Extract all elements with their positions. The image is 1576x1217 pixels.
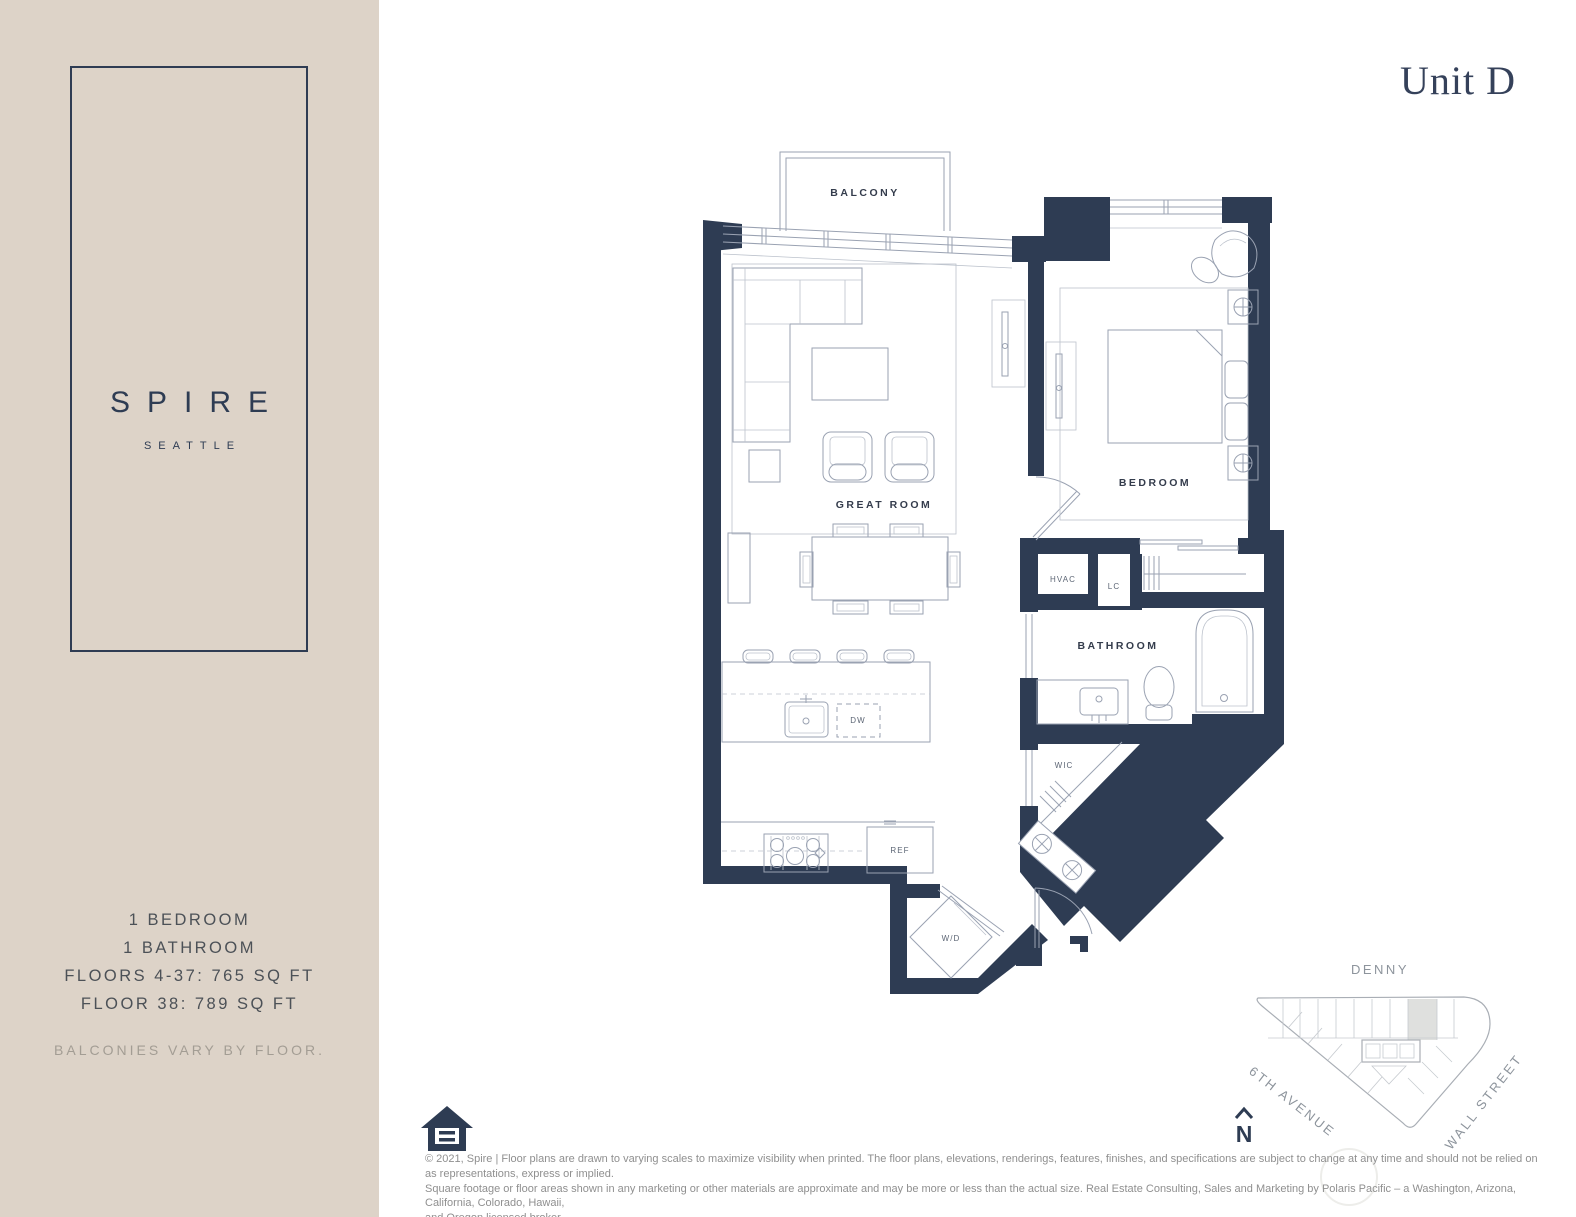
disclaimer: © 2021, Spire | Floor plans are drawn to… xyxy=(425,1152,1550,1217)
label-great-room: GREAT ROOM xyxy=(836,499,933,511)
highlighted-unit xyxy=(1408,999,1437,1040)
console xyxy=(728,533,750,603)
disclaimer-line: and Oregon licensed broker. xyxy=(425,1211,1550,1217)
elevator-core xyxy=(1362,1040,1420,1062)
label-wic: WIC xyxy=(1055,761,1074,770)
label-dw: DW xyxy=(850,716,866,725)
great-room-furniture xyxy=(728,264,1025,614)
closet-slider xyxy=(1140,540,1202,544)
linen-closet xyxy=(1144,556,1246,590)
tv-wall-mount xyxy=(992,300,1025,387)
bathtub xyxy=(1196,610,1253,712)
pillow xyxy=(1225,361,1248,398)
label-bathroom: BATHROOM xyxy=(1077,640,1158,652)
label-ref: REF xyxy=(890,846,909,855)
rug xyxy=(732,264,956,534)
windows xyxy=(723,152,1222,268)
coffee-table xyxy=(812,348,888,400)
pillow xyxy=(1225,403,1248,440)
label-wd: W/D xyxy=(942,934,961,943)
bedroom-chair xyxy=(1186,231,1256,288)
side-table xyxy=(749,450,780,482)
kitchen-sink xyxy=(785,695,828,737)
floorplan-drawing: BALCONY GREAT ROOM BEDROOM BATHROOM HVAC… xyxy=(0,0,1576,1217)
armchair xyxy=(823,432,872,482)
label-lc: LC xyxy=(1108,582,1120,591)
label-hvac: HVAC xyxy=(1050,575,1076,584)
bar-stools xyxy=(743,650,914,663)
sofa xyxy=(733,268,862,442)
dining-table xyxy=(812,537,948,600)
street-wall-street: WALL STREET xyxy=(1442,1051,1526,1152)
armchair xyxy=(885,432,934,482)
unit-walls xyxy=(703,197,1284,994)
floorplan-page: { "colors": { "wall": "#2e3c53", "sideba… xyxy=(0,0,1576,1217)
toilet xyxy=(1144,667,1174,721)
bed xyxy=(1108,330,1222,443)
street-6th-avenue: 6TH AVENUE xyxy=(1246,1063,1338,1139)
site-key-map: DENNY 6TH AVENUE WALL STREET xyxy=(1246,962,1525,1152)
bathroom-fixtures xyxy=(1037,610,1253,724)
north-caret-icon xyxy=(1236,1109,1252,1118)
label-bedroom: BEDROOM xyxy=(1119,477,1191,489)
page-title: Unit D xyxy=(1400,57,1516,104)
bedroom-furniture xyxy=(1046,231,1258,590)
label-balcony: BALCONY xyxy=(830,187,899,199)
disclaimer-line: © 2021, Spire | Floor plans are drawn to… xyxy=(425,1152,1550,1182)
kitchen xyxy=(721,650,935,873)
vanity-sink xyxy=(1037,680,1128,724)
north-arrow: N xyxy=(1236,1109,1253,1147)
equal-housing-icon xyxy=(421,1106,473,1151)
bedroom-door-arc xyxy=(1036,477,1080,494)
north-label: N xyxy=(1236,1121,1253,1147)
disclaimer-line: Square footage or floor areas shown in a… xyxy=(425,1182,1550,1212)
street-denny: DENNY xyxy=(1351,962,1409,977)
tv-wall-mount xyxy=(1046,342,1076,430)
